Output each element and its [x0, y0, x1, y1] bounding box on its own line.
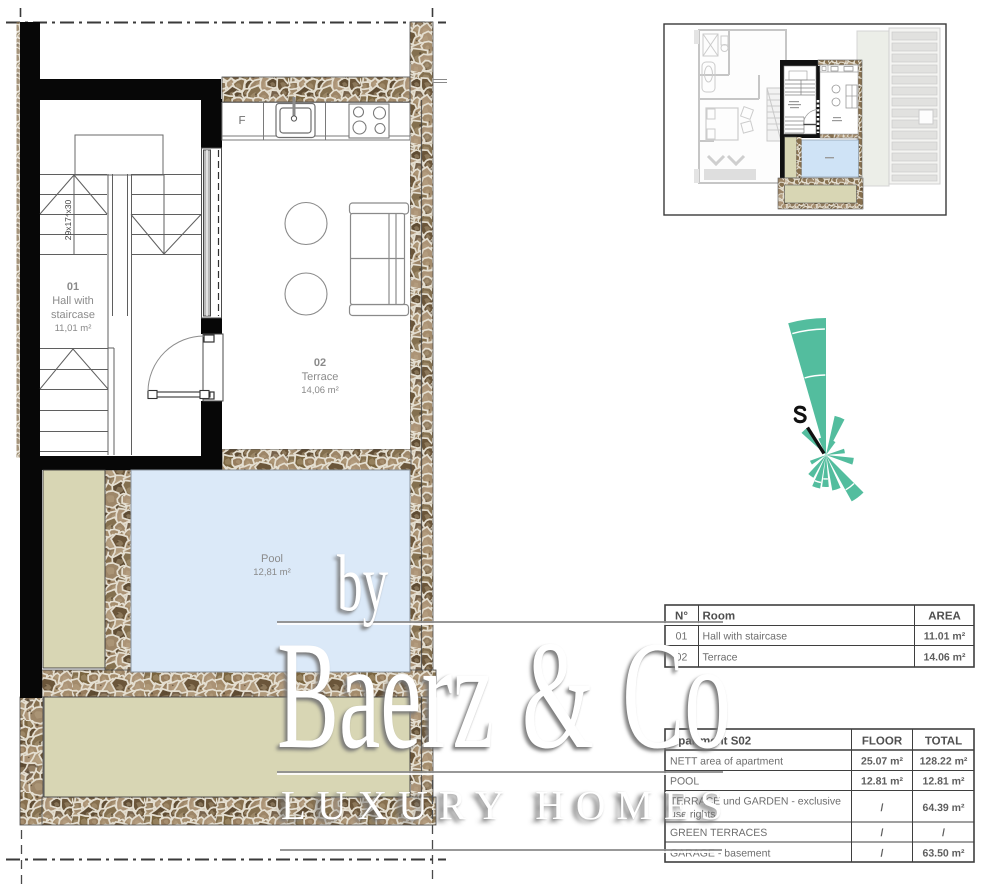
svg-text:/: / [881, 848, 884, 860]
svg-text:/: / [881, 802, 884, 814]
svg-text:02: 02 [314, 357, 326, 369]
svg-text:25.07 m²: 25.07 m² [861, 756, 904, 768]
svg-text:/: / [881, 827, 884, 839]
svg-text:TOTAL: TOTAL [925, 736, 962, 748]
svg-text:01: 01 [67, 281, 79, 293]
svg-text:Terrace: Terrace [302, 371, 339, 383]
svg-text:64.39 m²: 64.39 m² [922, 802, 965, 814]
svg-text:12,81 m²: 12,81 m² [253, 567, 291, 578]
svg-text:Pool: Pool [261, 553, 283, 565]
svg-text:11.01 m²: 11.01 m² [924, 631, 966, 643]
svg-text:12.81 m²: 12.81 m² [861, 776, 904, 788]
svg-text:FLOOR: FLOOR [862, 736, 903, 748]
svg-text:GREEN TERRACES: GREEN TERRACES [670, 827, 767, 839]
svg-text:63.50 m²: 63.50 m² [922, 848, 965, 860]
svg-text:11,01 m²: 11,01 m² [55, 323, 92, 334]
svg-text:AREA: AREA [928, 611, 961, 623]
svg-text:12.81 m²: 12.81 m² [922, 776, 965, 788]
svg-text:29x17⁴x30: 29x17⁴x30 [63, 199, 73, 240]
svg-text:Hall with: Hall with [52, 295, 94, 307]
svg-text:14,06 m²: 14,06 m² [301, 385, 339, 396]
svg-text:14.06 m²: 14.06 m² [923, 652, 966, 664]
svg-text:/: / [942, 827, 945, 839]
svg-text:staircase: staircase [51, 309, 95, 321]
svg-text:128.22 m²: 128.22 m² [920, 756, 968, 768]
svg-text:F: F [238, 115, 245, 127]
